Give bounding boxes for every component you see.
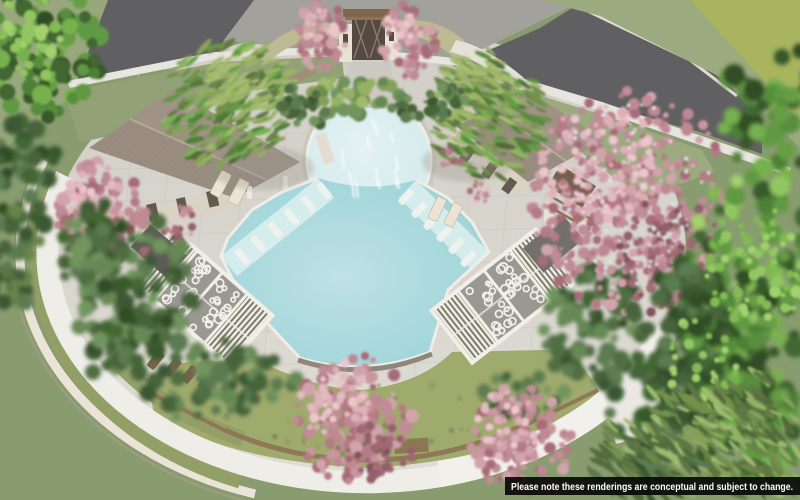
svg-text:Please note these renderings a: Please note these renderings are concept… <box>511 481 793 493</box>
